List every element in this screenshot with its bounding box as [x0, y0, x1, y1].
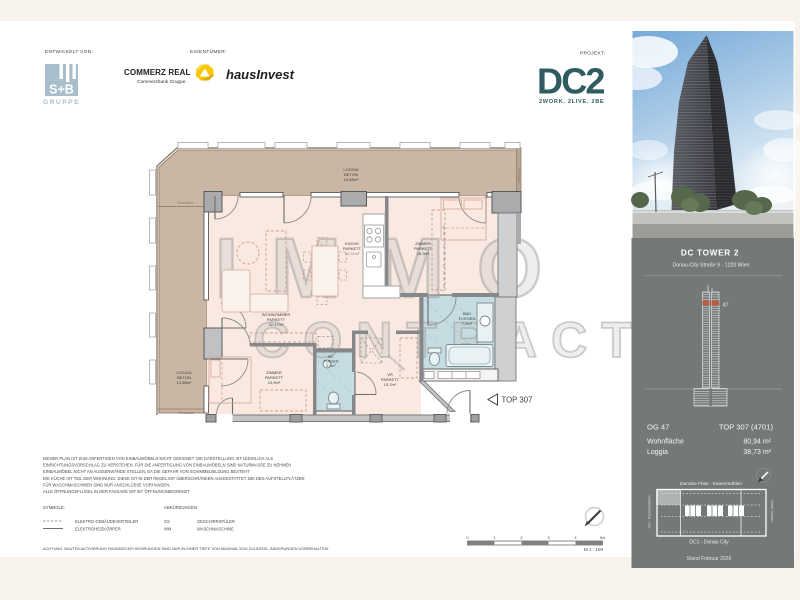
- svg-text:32,47m²: 32,47m²: [269, 322, 284, 327]
- svg-text:DIESER PLAN IST ZUM ANFERTIGEN: DIESER PLAN IST ZUM ANFERTIGEN VON EINBA…: [43, 456, 273, 461]
- svg-text:80,94 m²: 80,94 m²: [743, 439, 771, 446]
- svg-text:24,85m²: 24,85m²: [344, 177, 359, 182]
- svg-text:Commerzbank Gruppe: Commerzbank Gruppe: [137, 79, 186, 85]
- svg-text:2WORK. 2LIVE. 2BE: 2WORK. 2LIVE. 2BE: [539, 99, 604, 105]
- svg-text:ABKÜRZUNGEN:: ABKÜRZUNGEN:: [164, 505, 198, 510]
- svg-text:Donau-City-Straße 9 - 1220 Wie: Donau-City-Straße 9 - 1220 Wien: [673, 263, 750, 269]
- svg-text:FÜR WASCHMASCHINEN SIND NUR AN: FÜR WASCHMASCHINEN SIND NUR ANSCHLÜSSE V…: [43, 482, 170, 487]
- svg-text:TOP 307 (4701): TOP 307 (4701): [719, 423, 774, 432]
- svg-text:DC2: DC2: [537, 61, 604, 102]
- svg-text:hausInvest: hausInvest: [226, 67, 295, 82]
- svg-text:DC TOWER 2: DC TOWER 2: [681, 249, 739, 258]
- svg-text:DIE KÜCHE IST TEIL DER WOHNUNG: DIE KÜCHE IST TEIL DER WOHNUNG. DIESE IS…: [43, 476, 305, 481]
- svg-text:WC: WC: [328, 355, 334, 359]
- svg-text:Neue Donau: Neue Donau: [770, 500, 774, 521]
- svg-text:5m: 5m: [600, 535, 606, 540]
- svg-text:ELEKTRO-GEBÄUDEVERTEILER: ELEKTRO-GEBÄUDEVERTEILER: [75, 519, 138, 524]
- svg-text:M 1 : 100: M 1 : 100: [584, 547, 604, 552]
- svg-text:7,0m²: 7,0m²: [462, 321, 473, 326]
- svg-text:10,9m²: 10,9m²: [268, 380, 281, 385]
- svg-text:38,73 m²: 38,73 m²: [743, 449, 771, 456]
- svg-text:47: 47: [723, 303, 729, 309]
- svg-text:13,7m²: 13,7m²: [384, 382, 397, 387]
- svg-text:ELEKTROHEIZKÖRPER: ELEKTROHEIZKÖRPER: [75, 527, 121, 532]
- svg-text:Danube Flats - Kaisermühlen: Danube Flats - Kaisermühlen: [680, 481, 742, 487]
- svg-text:TOP 307: TOP 307: [502, 396, 533, 405]
- svg-text:EINBAUMÖBEL NICHT AN AUSSENWÄN: EINBAUMÖBEL NICHT AN AUSSENWÄNDE STELLEN…: [43, 469, 250, 474]
- svg-text:COMMERZ REAL: COMMERZ REAL: [124, 68, 191, 77]
- svg-text:Trennwand: Trennwand: [178, 411, 194, 415]
- svg-text:Trennwand: Trennwand: [517, 167, 521, 183]
- svg-text:EINRICHTUNGSVORSCHLAG ZU VERST: EINRICHTUNGSVORSCHLAG ZU VERSTEHEN. FÜR …: [43, 463, 291, 468]
- svg-text:FLIESEN: FLIESEN: [324, 360, 339, 364]
- svg-text:Loggia: Loggia: [647, 449, 668, 456]
- svg-text:10,01m²: 10,01m²: [345, 251, 360, 256]
- svg-text:ACHTUNG: BAUTEILAKTIVIERUNG RA: ACHTUNG: BAUTEILAKTIVIERUNG RAUMDECKE! B…: [43, 546, 329, 551]
- svg-text:S+B: S+B: [49, 83, 74, 97]
- svg-text:ALLE ÖFFNUNGSFLÜGEL IN DER FAS: ALLE ÖFFNUNGSFLÜGEL IN DER FASSADE MIT 8…: [43, 489, 190, 494]
- svg-text:SYMBOLE:: SYMBOLE:: [43, 505, 65, 510]
- svg-text:13,88m²: 13,88m²: [177, 380, 192, 385]
- svg-text:GRUPPE: GRUPPE: [43, 99, 80, 106]
- svg-text:PROJEKT:: PROJEKT:: [580, 51, 605, 57]
- svg-text:Wohnfläche: Wohnfläche: [647, 439, 684, 446]
- svg-text:DC1 - Donau City: DC1 - Donau City: [689, 540, 729, 546]
- svg-text:GESCHIRRSPÜLER: GESCHIRRSPÜLER: [197, 519, 235, 524]
- svg-text:EIGENTÜMER:: EIGENTÜMER:: [190, 48, 227, 55]
- svg-text:WM: WM: [164, 527, 172, 532]
- svg-text:Trennwand: Trennwand: [177, 201, 193, 205]
- svg-text:WASCHMASCHINE: WASCHMASCHINE: [197, 527, 234, 532]
- svg-text:Stand Februar 2026: Stand Februar 2026: [687, 556, 732, 562]
- svg-text:ENTWICKELT VON:: ENTWICKELT VON:: [45, 49, 93, 55]
- svg-text:2,2m²: 2,2m²: [326, 364, 336, 368]
- svg-text:16,3m²: 16,3m²: [417, 251, 430, 256]
- svg-text:VIC - Kaisermühlen: VIC - Kaisermühlen: [648, 496, 652, 529]
- svg-text:OG 47: OG 47: [647, 423, 669, 432]
- svg-text:GS: GS: [164, 519, 170, 524]
